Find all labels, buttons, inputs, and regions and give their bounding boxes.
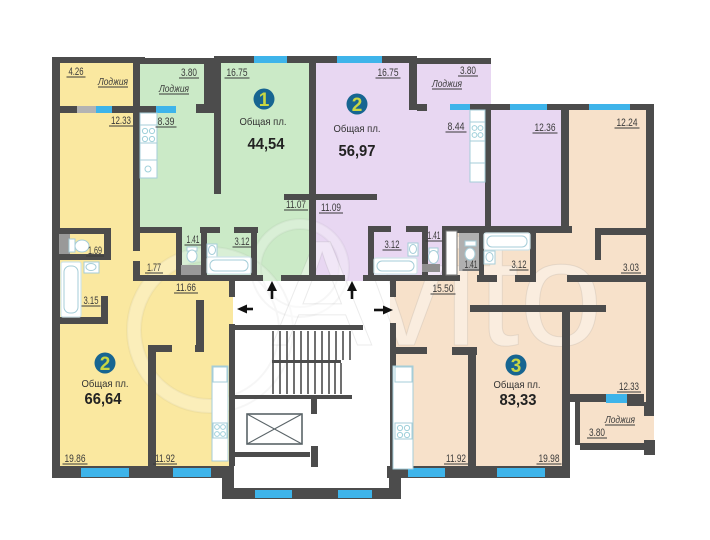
svg-text:3: 3: [511, 356, 522, 377]
svg-text:16.75: 16.75: [378, 67, 399, 79]
svg-text:Лоджия: Лоджия: [158, 83, 189, 95]
svg-text:Лоджия: Лоджия: [97, 76, 128, 88]
svg-text:11.92: 11.92: [155, 453, 175, 465]
svg-text:12.36: 12.36: [535, 122, 556, 134]
svg-text:3.12: 3.12: [235, 236, 250, 248]
svg-text:Общая пл.: Общая пл.: [82, 378, 129, 390]
svg-text:83,33: 83,33: [500, 392, 537, 409]
svg-text:8.44: 8.44: [448, 121, 465, 133]
svg-text:56,97: 56,97: [339, 143, 376, 160]
svg-text:11.66: 11.66: [176, 282, 196, 294]
svg-text:1.41: 1.41: [428, 230, 441, 242]
svg-text:19.98: 19.98: [539, 453, 560, 465]
svg-text:12.33: 12.33: [619, 381, 639, 393]
svg-text:3.03: 3.03: [623, 262, 639, 274]
svg-text:1.69: 1.69: [88, 245, 102, 257]
svg-text:44,54: 44,54: [248, 136, 285, 153]
svg-text:2: 2: [100, 354, 111, 375]
svg-text:Общая пл.: Общая пл.: [494, 379, 541, 391]
svg-text:1.41: 1.41: [187, 234, 200, 246]
svg-text:Лоджия: Лоджия: [431, 78, 462, 90]
svg-text:3.12: 3.12: [385, 239, 400, 251]
svg-text:19.86: 19.86: [65, 453, 86, 465]
svg-text:Общая пл.: Общая пл.: [334, 123, 381, 135]
svg-text:Общая пл.: Общая пл.: [240, 116, 287, 128]
svg-text:3.15: 3.15: [84, 295, 99, 307]
svg-text:11.92: 11.92: [446, 453, 466, 465]
svg-text:3.12: 3.12: [512, 259, 527, 271]
svg-text:1: 1: [259, 90, 270, 111]
svg-text:8.39: 8.39: [158, 116, 175, 128]
svg-text:11.09: 11.09: [321, 202, 341, 214]
svg-text:12.24: 12.24: [617, 117, 638, 129]
svg-text:Лоджия: Лоджия: [604, 414, 635, 426]
svg-text:3.80: 3.80: [460, 65, 476, 77]
svg-text:3.80: 3.80: [589, 427, 605, 439]
svg-text:12.33: 12.33: [111, 115, 131, 127]
svg-text:15.50: 15.50: [433, 283, 454, 295]
svg-text:66,64: 66,64: [85, 391, 122, 408]
svg-text:2: 2: [352, 95, 363, 116]
svg-text:16.75: 16.75: [227, 67, 248, 79]
svg-text:11.07: 11.07: [286, 199, 306, 211]
svg-text:4.26: 4.26: [69, 66, 84, 78]
svg-text:1.41: 1.41: [465, 259, 478, 271]
svg-text:1.77: 1.77: [147, 262, 161, 274]
svg-text:3.80: 3.80: [181, 67, 197, 79]
